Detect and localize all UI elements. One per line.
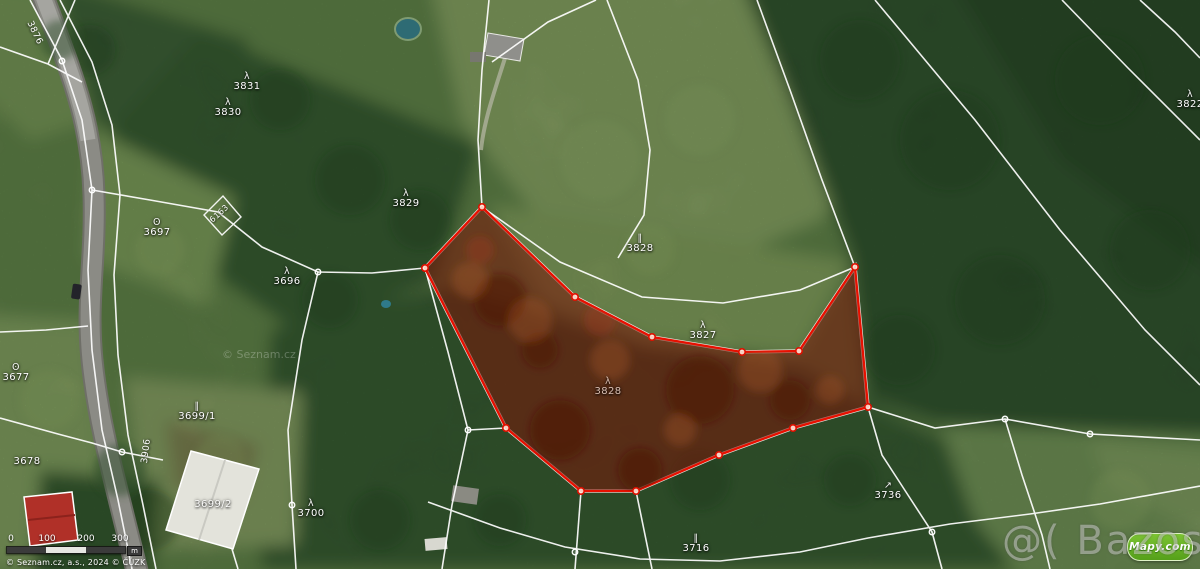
pond [395,18,421,40]
scale-tick: 300 [111,534,128,544]
scale-unit: m [127,546,142,556]
scale-bar-segments [6,546,126,554]
mapy-logo[interactable]: Mapy.com [1127,533,1193,561]
shed-2 [425,537,448,551]
map-attribution: © Seznam.cz, a.s., 2024 © ČÚZK [6,558,145,567]
small-pool [381,300,391,308]
scale-tick: 200 [77,534,94,544]
map-viewport[interactable]: λ 3831 λ 3830 λ 3829 ∥ 3828 λ 3827 λ 382… [0,0,1200,569]
scale-tick: 0 [8,534,14,544]
scale-bar: 0 100 200 300 m © Seznam.cz, a.s., 2024 … [6,534,176,568]
satellite-map [0,0,1200,569]
scale-tick: 100 [38,534,55,544]
